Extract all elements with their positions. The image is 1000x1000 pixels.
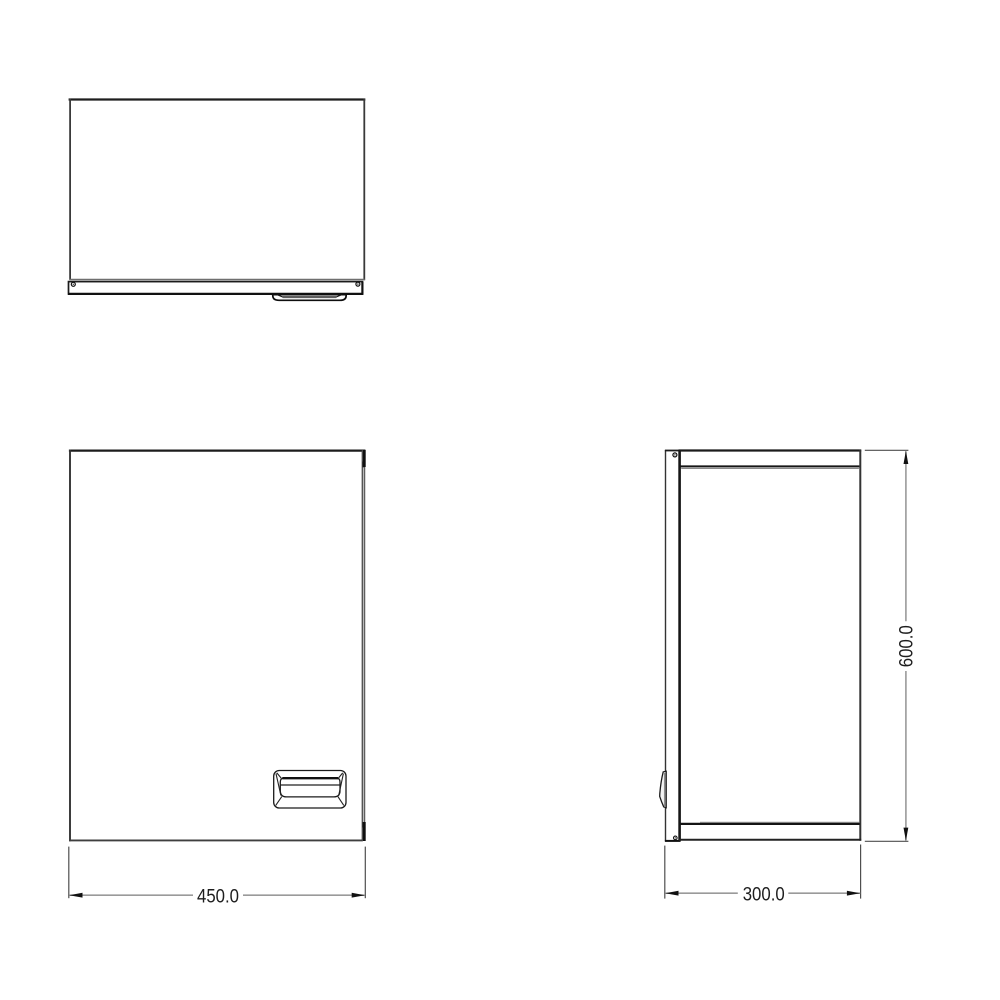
svg-text:300.0: 300.0 (743, 885, 785, 906)
svg-text:600.0: 600.0 (897, 625, 918, 667)
svg-text:450.0: 450.0 (197, 887, 239, 908)
